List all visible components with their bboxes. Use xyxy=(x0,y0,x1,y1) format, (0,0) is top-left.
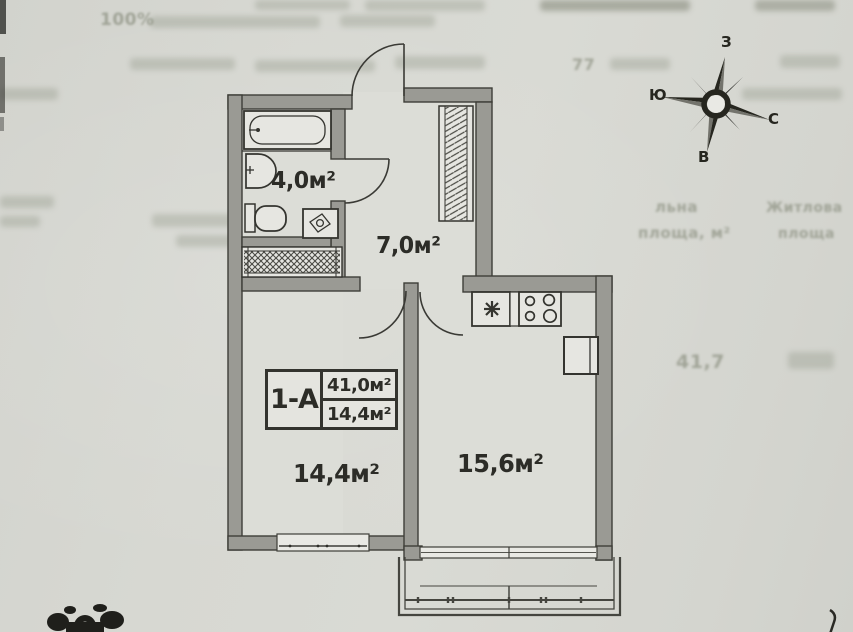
kitchen-sink xyxy=(472,292,510,326)
room-area-label-hallway: 7,0м² xyxy=(376,233,440,259)
entrance-door xyxy=(352,44,404,96)
wardrobe-hatched-low xyxy=(242,247,342,277)
room-area-label-bathroom: 4,0м² xyxy=(271,168,335,194)
balcony xyxy=(399,557,620,615)
living-room-door xyxy=(359,291,406,338)
room-area-label-living-room: 14,4м² xyxy=(293,459,379,488)
compass-label-north: С xyxy=(768,110,779,128)
compass-rose xyxy=(662,57,770,152)
stamp-emblem xyxy=(47,604,124,632)
scanned-floorplan-page: 100% 77 льна площа, м² Житлова площа 41,… xyxy=(0,0,853,632)
wardrobe-hatched-tall xyxy=(439,106,473,221)
unit-info-box: 1-А 41,0м² 14,4м² xyxy=(265,369,398,430)
floor-plan-drawing xyxy=(0,0,853,632)
scan-edge-marks xyxy=(0,0,6,131)
unit-total-area: 41,0м² xyxy=(323,372,395,401)
window-living-room xyxy=(277,534,369,551)
kitchen-counter xyxy=(510,292,519,326)
fridge xyxy=(564,337,598,374)
compass-label-west: З xyxy=(721,33,732,51)
toilet xyxy=(245,204,286,232)
scan-mark-bottom-right xyxy=(830,610,835,632)
stove xyxy=(519,292,561,326)
bathtub xyxy=(242,111,331,151)
compass-label-south: Ю xyxy=(649,86,667,104)
unit-code: 1-А xyxy=(268,372,323,427)
compass-label-east: В xyxy=(698,148,709,166)
washing-machine xyxy=(303,209,338,238)
balcony-window-unit xyxy=(420,547,597,558)
unit-living-area: 14,4м² xyxy=(323,401,395,427)
room-area-label-kitchen: 15,6м² xyxy=(457,449,543,478)
